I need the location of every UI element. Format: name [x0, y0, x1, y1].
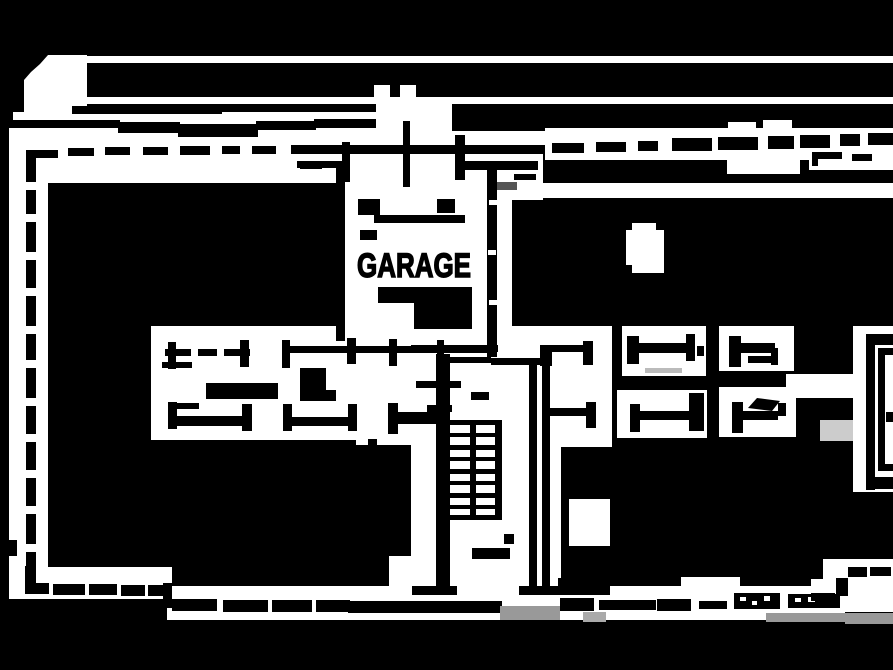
svg-text:GARAGE: GARAGE — [357, 247, 471, 285]
